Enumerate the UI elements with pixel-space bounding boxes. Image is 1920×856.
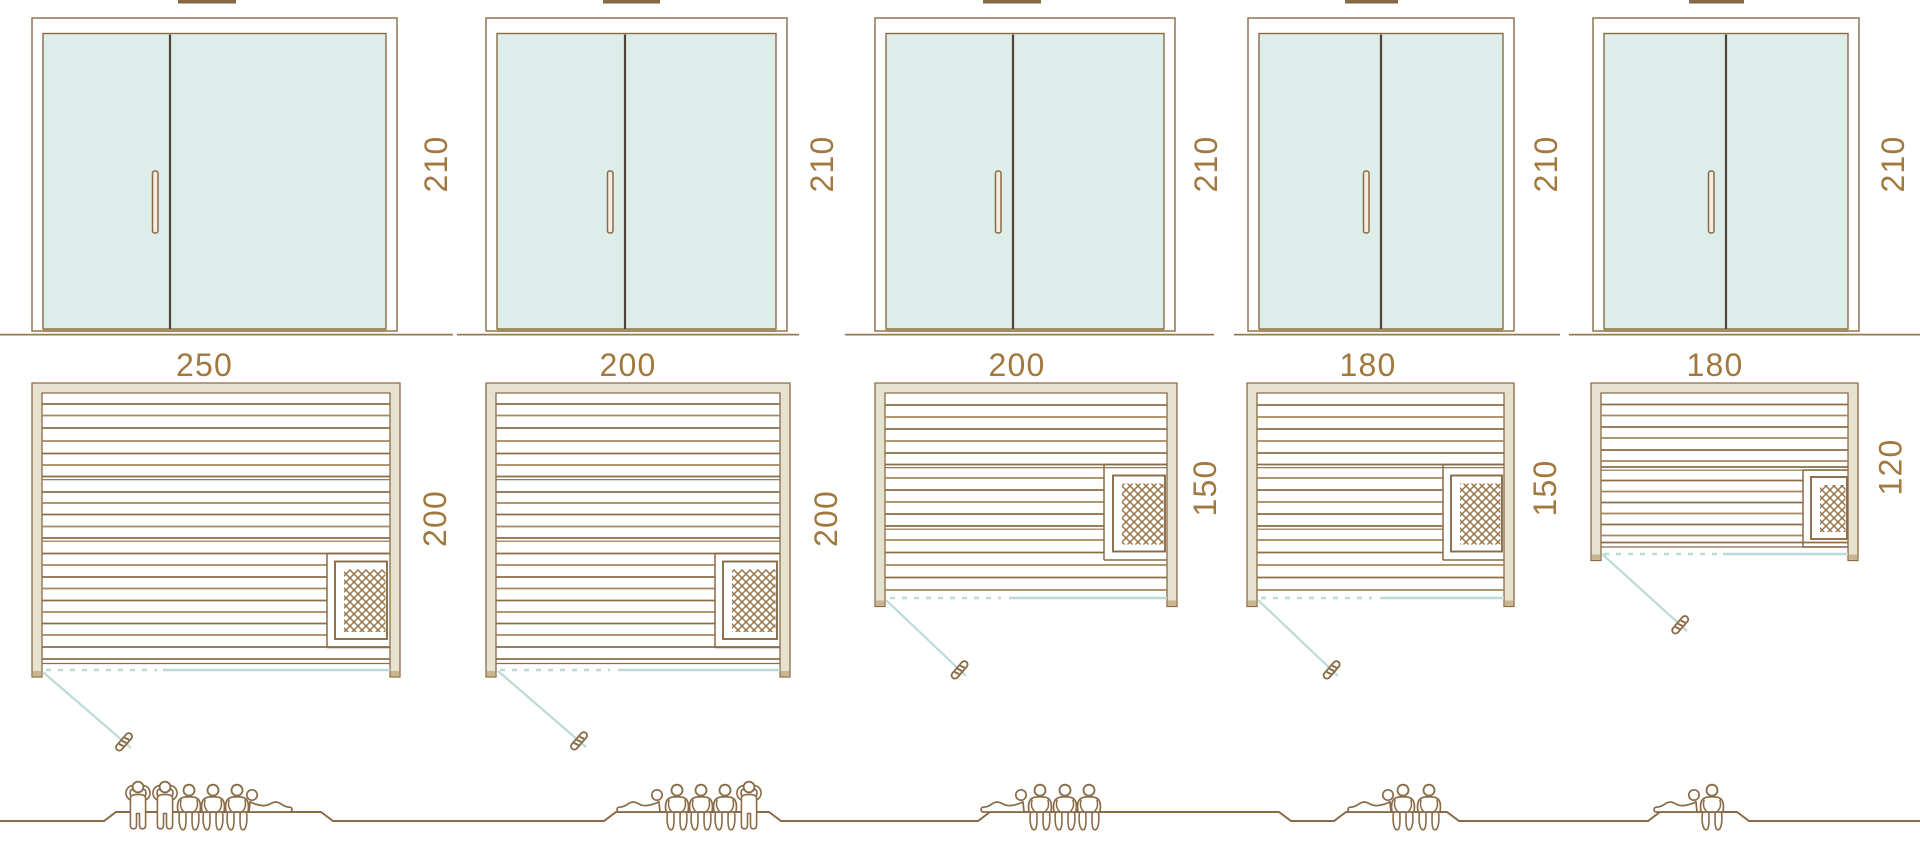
svg-text:200: 200 <box>808 490 844 547</box>
svg-text:250: 250 <box>176 347 233 383</box>
svg-text:120: 120 <box>1873 439 1909 496</box>
svg-text:180: 180 <box>1687 347 1744 383</box>
svg-text:150: 150 <box>1527 460 1563 517</box>
svg-text:210: 210 <box>1188 136 1224 193</box>
svg-text:200: 200 <box>600 347 657 383</box>
svg-text:210: 210 <box>804 136 840 193</box>
svg-text:180: 180 <box>1340 347 1397 383</box>
svg-text:210: 210 <box>1875 136 1911 193</box>
svg-text:150: 150 <box>1187 460 1223 517</box>
svg-text:200: 200 <box>417 490 453 547</box>
svg-text:210: 210 <box>418 136 454 193</box>
svg-text:210: 210 <box>1528 136 1564 193</box>
svg-text:200: 200 <box>989 347 1046 383</box>
